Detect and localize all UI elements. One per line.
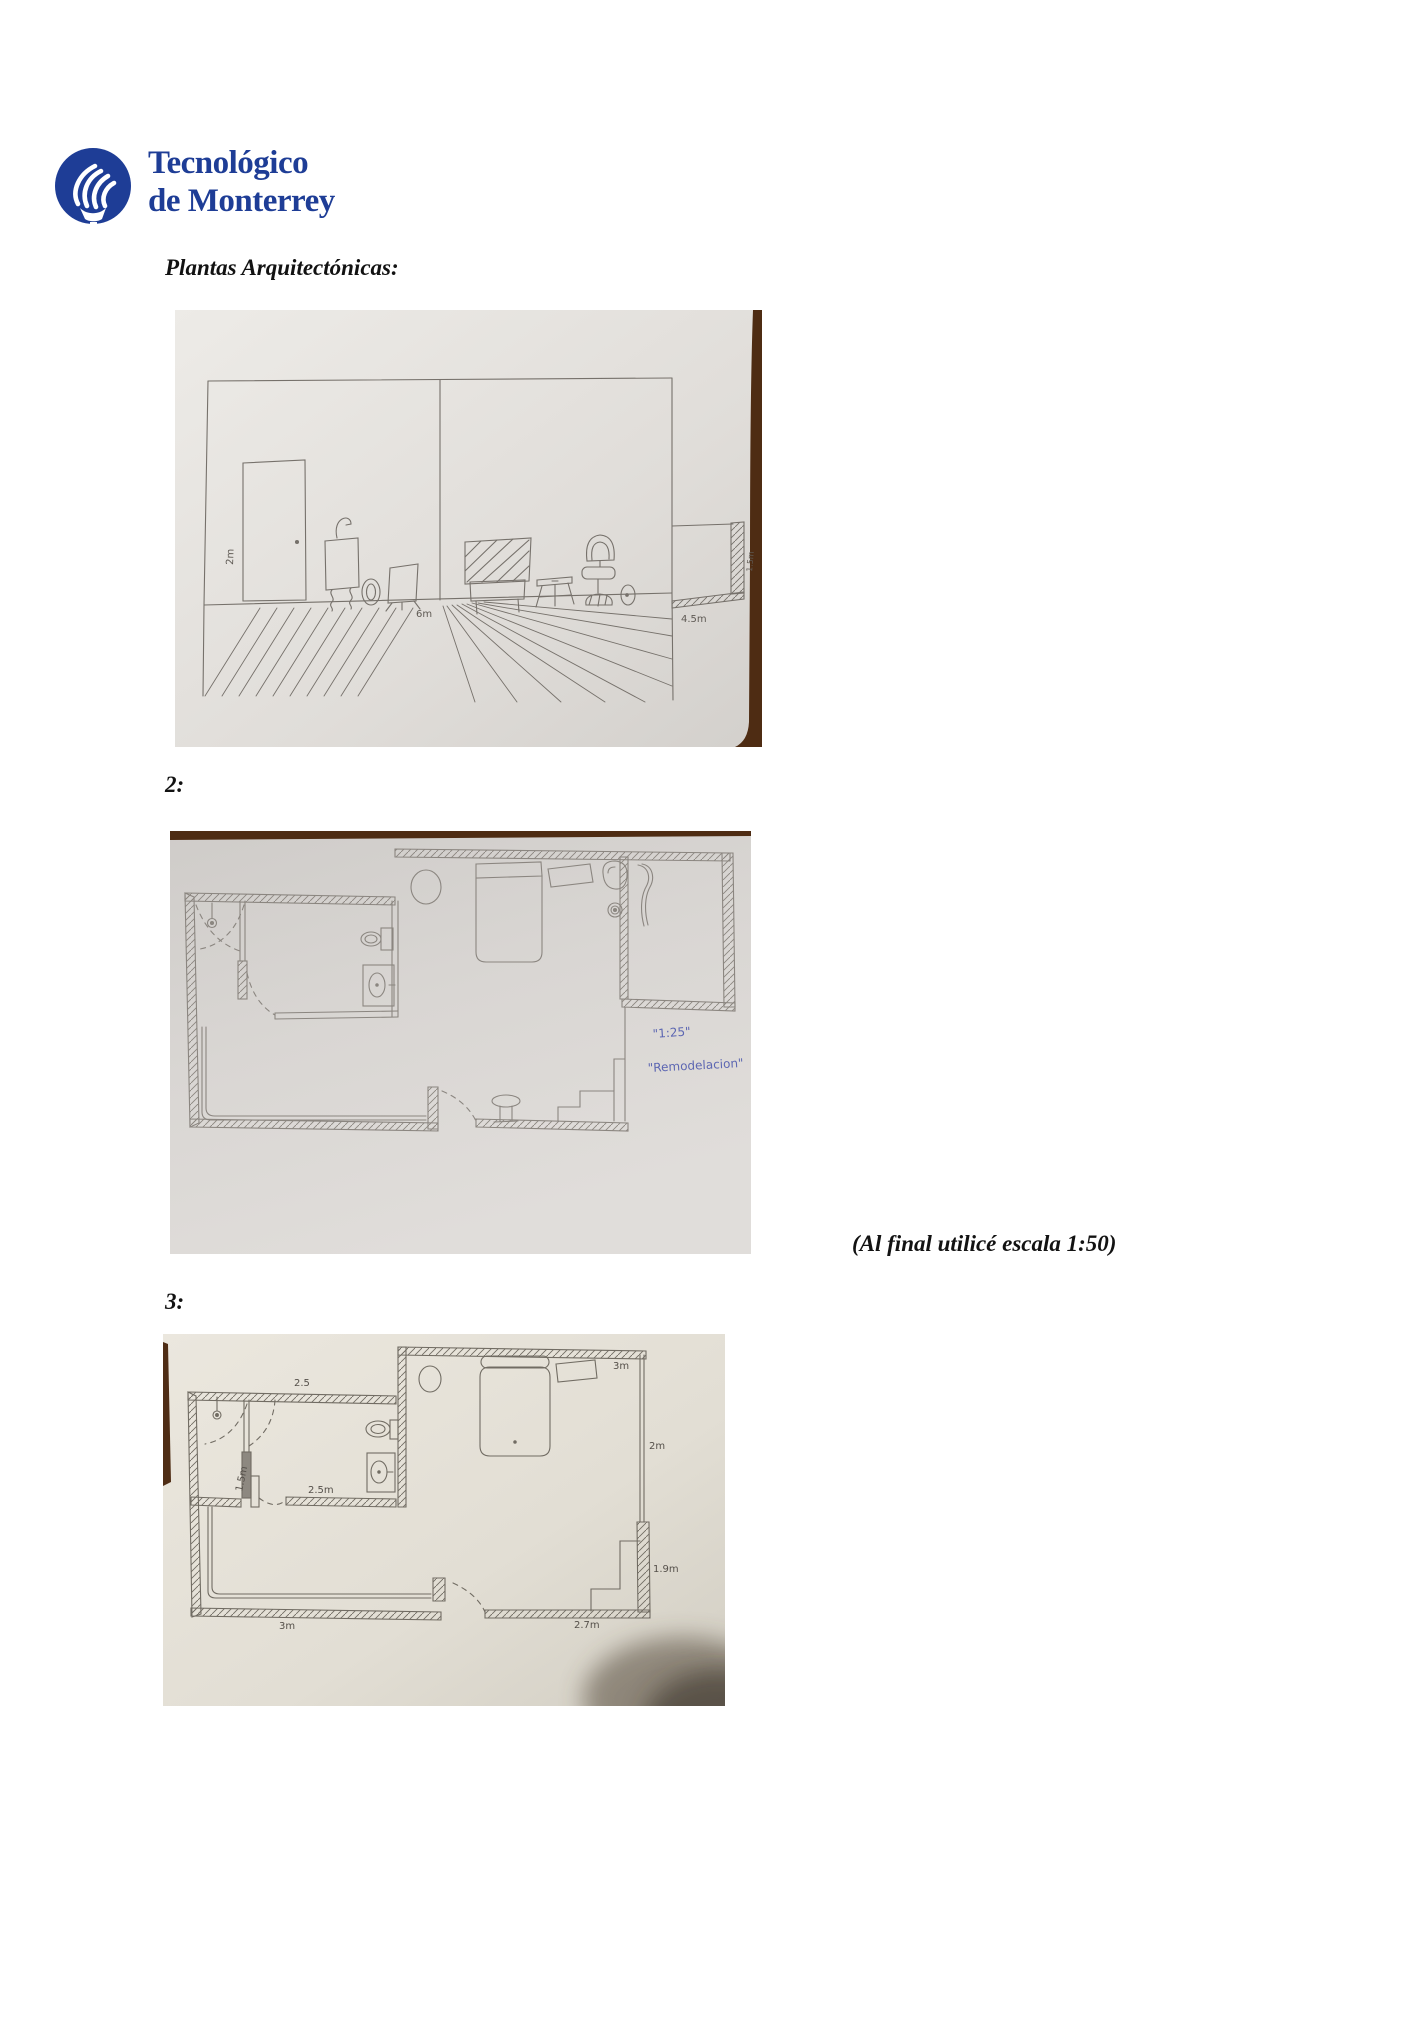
document-page: Tecnológico de Monterrey Plantas Arquite…: [0, 0, 1428, 2028]
figure-3-floorplan-photo: 2.5 3m 2m 1.9m 2.5m 3m 2.7m 1.5m: [163, 1334, 725, 1706]
tec-de-monterrey-logo-icon: [54, 146, 134, 230]
fig3-label-bed-height: 2m: [649, 1441, 665, 1452]
fig1-label-door-height: 2m: [225, 549, 237, 565]
logo-circle: [55, 148, 131, 224]
fig3-label-bed-width: 3m: [613, 1361, 629, 1372]
logo-line1: Tecnológico: [148, 144, 335, 182]
figure-2-floorplan-photo: "1:25" "Remodelacion": [170, 831, 751, 1254]
fig3-label-bath-bottom: 2.5m: [308, 1485, 334, 1496]
fig3-label-bottom-right: 2.7m: [574, 1620, 600, 1631]
logo-line2: de Monterrey: [148, 182, 335, 220]
logo-wordmark: Tecnológico de Monterrey: [148, 144, 335, 220]
fig3-label-right-height: 1.9m: [653, 1564, 679, 1575]
page-title: Plantas Arquitectónicas:: [165, 255, 399, 281]
logo-torch-stem: [90, 222, 97, 230]
fig3-label-bath-top: 2.5: [294, 1378, 310, 1389]
section-label-2: 2:: [165, 772, 184, 798]
fig3-label-living-bottom: 3m: [279, 1621, 295, 1632]
scale-note: (Al final utilicé escala 1:50): [852, 1231, 1116, 1257]
fig1-label-room-width: 6m: [416, 609, 432, 620]
section-label-3: 3:: [165, 1289, 184, 1315]
fig2-scale-note: "1:25": [652, 1024, 691, 1041]
fig1-label-side-wall: 1.5m: [745, 551, 756, 572]
figure-1-elevation-photo: 2m 6m 4.5m 1.5m: [175, 310, 762, 747]
logo: Tecnológico de Monterrey: [54, 146, 414, 236]
fig1-label-side-width: 4.5m: [681, 614, 707, 625]
